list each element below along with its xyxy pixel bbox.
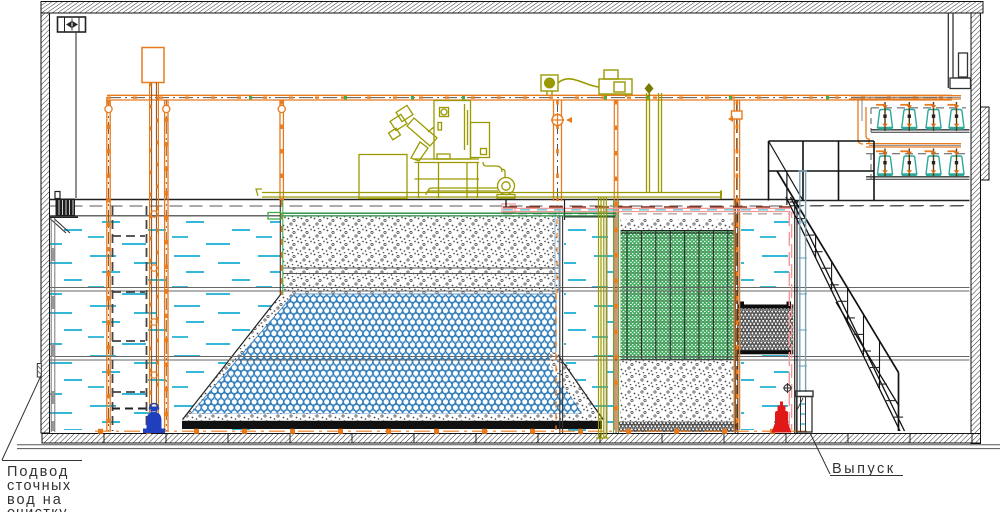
svg-text:очистку: очистку xyxy=(7,505,68,512)
svg-text:Выпуск: Выпуск xyxy=(832,461,896,477)
